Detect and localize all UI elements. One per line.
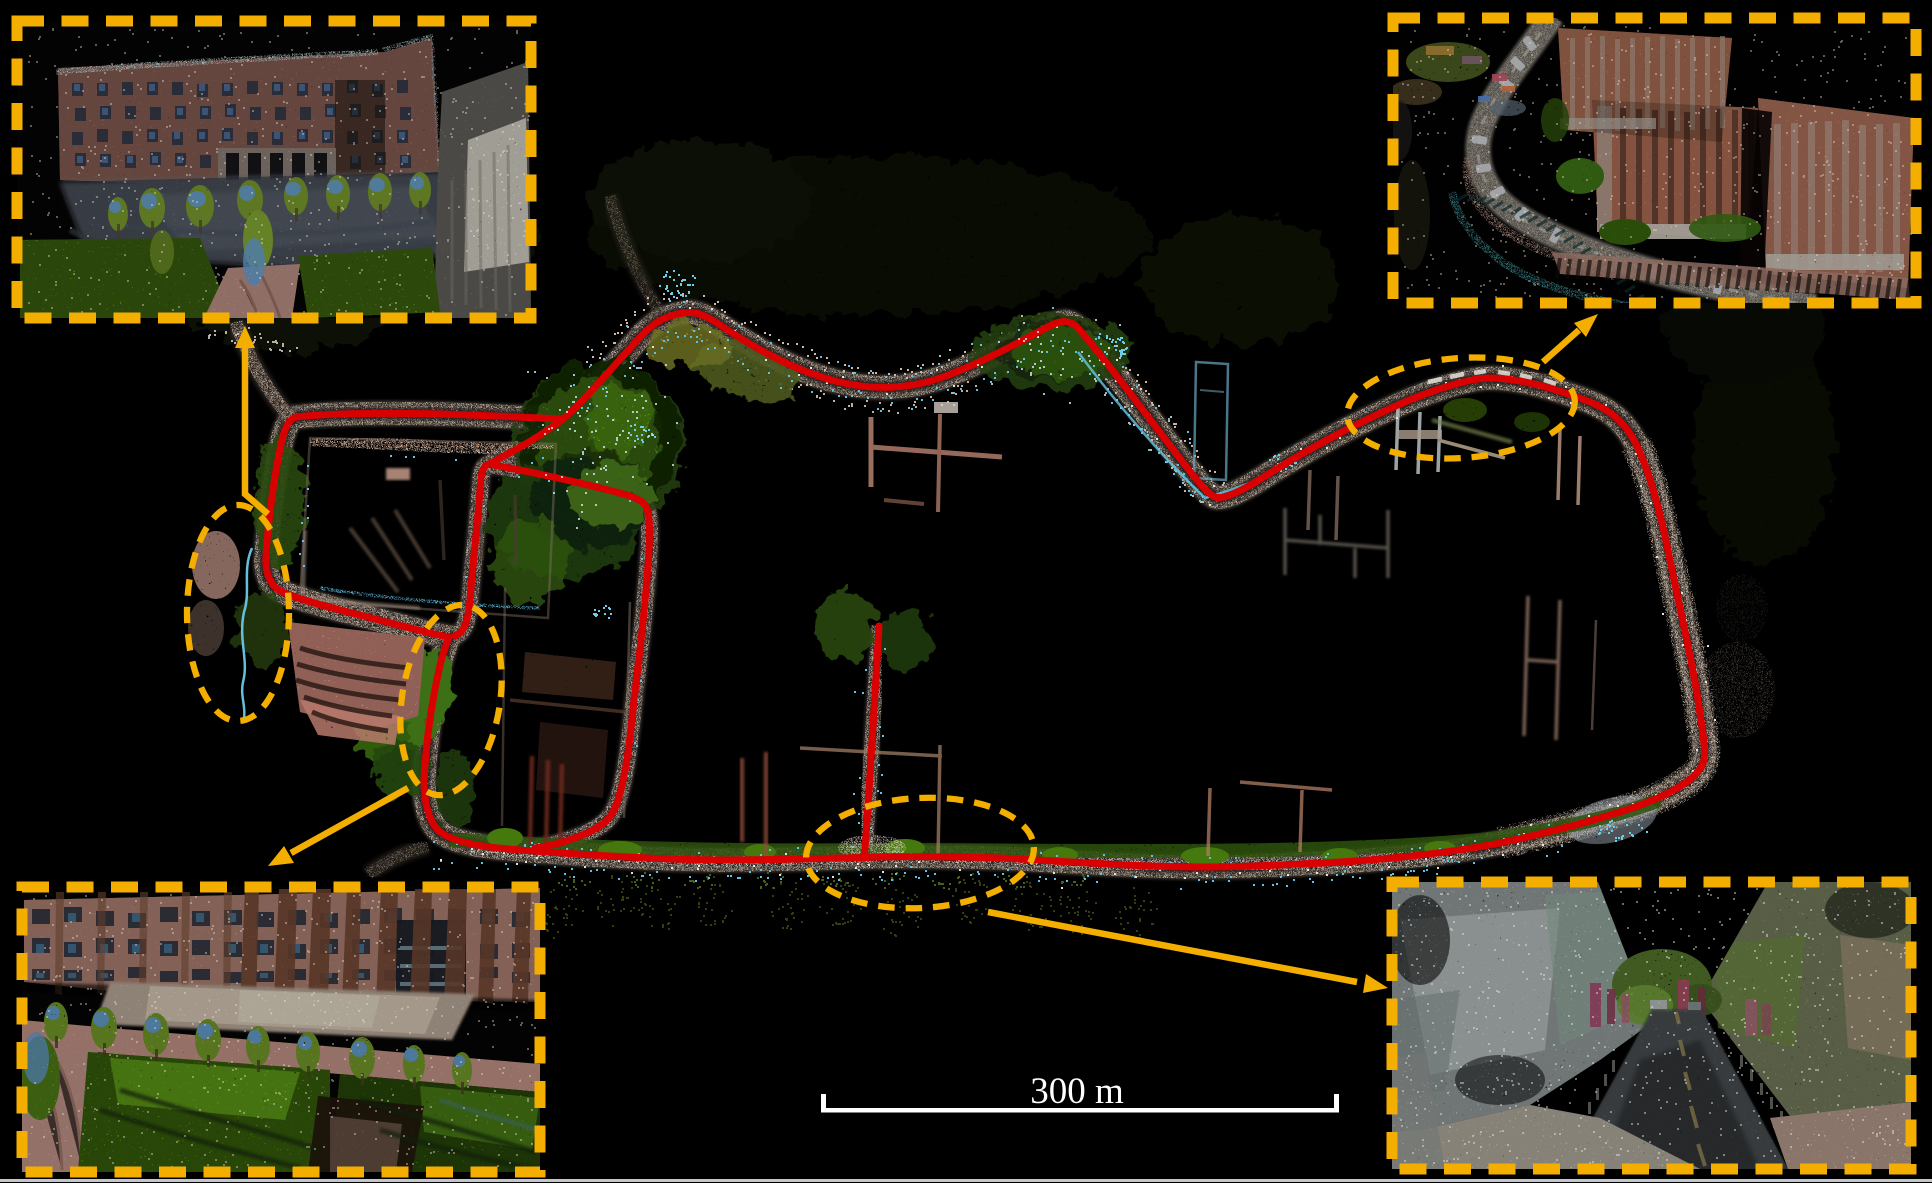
- svg-text:300 m: 300 m: [1030, 1071, 1124, 1112]
